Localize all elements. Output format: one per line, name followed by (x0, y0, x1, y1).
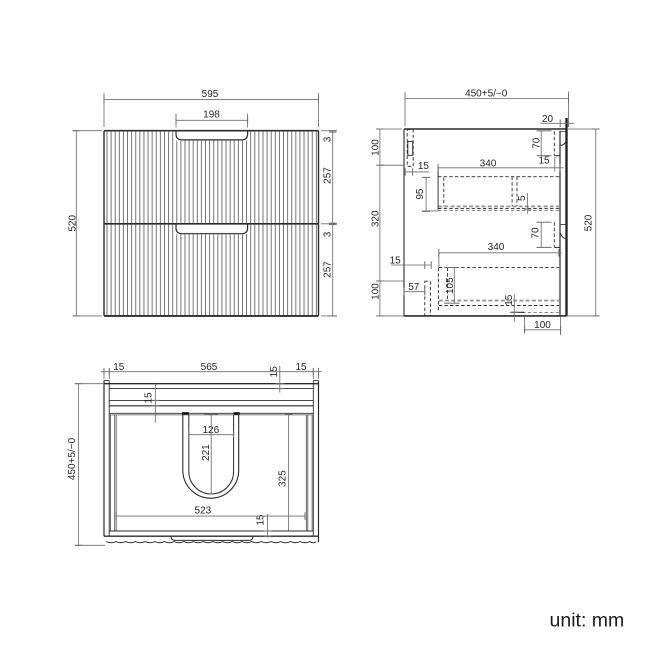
svg-text:523: 523 (195, 506, 212, 517)
svg-text:70: 70 (532, 137, 543, 149)
svg-text:221: 221 (201, 444, 212, 461)
svg-text:565: 565 (201, 362, 218, 373)
svg-text:450+5/−0: 450+5/−0 (67, 437, 78, 480)
svg-text:340: 340 (488, 242, 505, 253)
svg-text:70: 70 (530, 227, 541, 239)
svg-text:15: 15 (390, 256, 402, 267)
svg-text:595: 595 (202, 89, 219, 100)
svg-text:15: 15 (538, 156, 550, 167)
svg-text:15: 15 (269, 366, 280, 378)
svg-text:3: 3 (323, 136, 334, 142)
svg-text:100: 100 (370, 283, 381, 300)
svg-text:340: 340 (480, 158, 497, 169)
svg-text:257: 257 (323, 261, 334, 278)
svg-text:unit: mm: unit: mm (550, 610, 625, 632)
svg-text:520: 520 (68, 215, 79, 232)
svg-text:15: 15 (504, 294, 515, 306)
svg-text:320: 320 (370, 210, 381, 227)
svg-text:100: 100 (534, 320, 551, 331)
svg-text:105: 105 (445, 277, 456, 294)
svg-text:95: 95 (415, 188, 426, 200)
svg-text:325: 325 (277, 470, 288, 487)
svg-text:3: 3 (323, 231, 334, 237)
svg-text:5: 5 (517, 195, 528, 201)
svg-text:15: 15 (418, 161, 430, 172)
svg-text:57: 57 (408, 282, 420, 293)
svg-text:520: 520 (584, 214, 595, 231)
svg-text:198: 198 (203, 109, 220, 120)
svg-text:15: 15 (143, 392, 154, 404)
svg-text:257: 257 (323, 167, 334, 184)
svg-text:20: 20 (542, 114, 554, 125)
svg-text:450+5/−0: 450+5/−0 (465, 89, 508, 100)
svg-text:100: 100 (370, 139, 381, 156)
svg-text:15: 15 (295, 362, 307, 373)
svg-text:15: 15 (113, 362, 125, 373)
